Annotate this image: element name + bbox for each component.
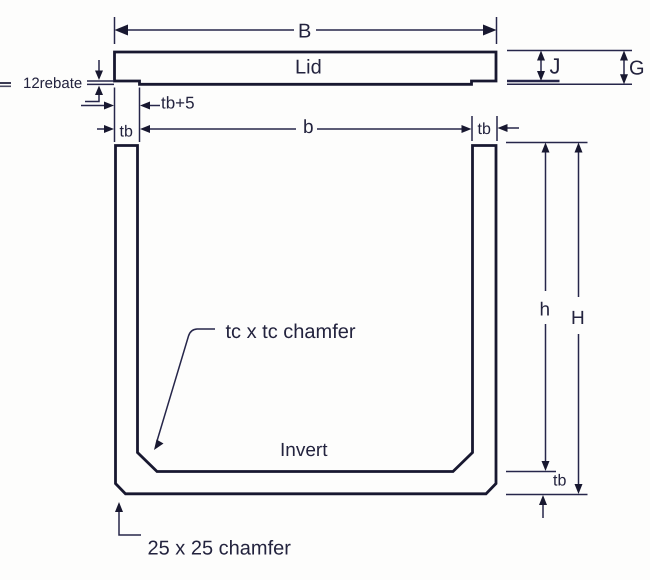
svg-text:tc x tc chamfer: tc x tc chamfer: [226, 321, 356, 343]
svg-text:h: h: [540, 300, 551, 321]
svg-text:tb: tb: [120, 124, 133, 141]
svg-text:G: G: [629, 58, 645, 80]
svg-text:tb: tb: [478, 121, 491, 138]
svg-text:J: J: [550, 54, 561, 79]
svg-text:H: H: [571, 308, 585, 329]
svg-text:tb+5: tb+5: [161, 94, 195, 113]
svg-text:25 x 25 chamfer: 25 x 25 chamfer: [148, 538, 292, 560]
svg-text:b: b: [303, 117, 314, 138]
svg-text:Lid: Lid: [295, 57, 322, 79]
svg-text:tb: tb: [553, 473, 566, 490]
svg-text:Invert: Invert: [280, 440, 328, 461]
svg-text:12rebate: 12rebate: [23, 75, 82, 92]
svg-text:B: B: [298, 21, 311, 43]
